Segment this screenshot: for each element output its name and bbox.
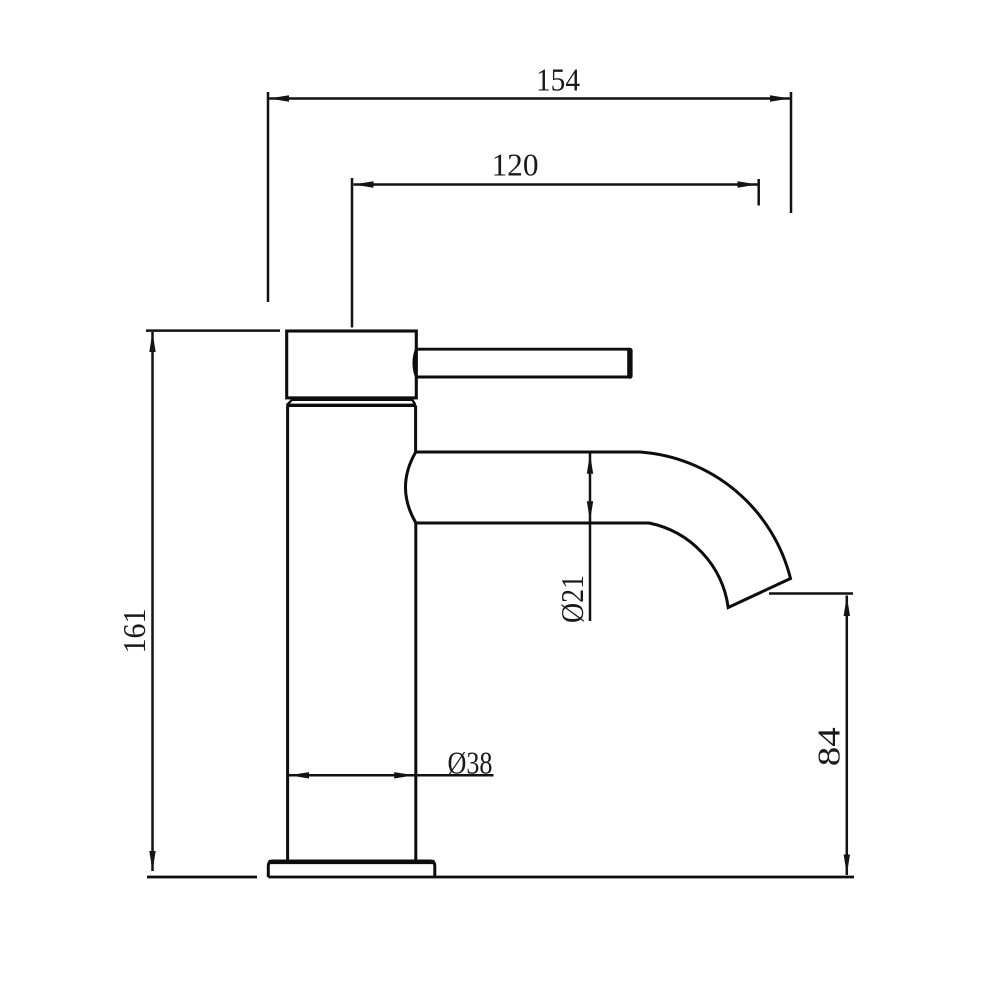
svg-text:Ø38: Ø38 bbox=[448, 745, 493, 781]
svg-text:Ø21: Ø21 bbox=[554, 575, 590, 623]
svg-text:120: 120 bbox=[492, 147, 539, 183]
svg-text:154: 154 bbox=[536, 62, 580, 98]
svg-text:84: 84 bbox=[811, 727, 847, 766]
svg-text:161: 161 bbox=[116, 609, 152, 654]
